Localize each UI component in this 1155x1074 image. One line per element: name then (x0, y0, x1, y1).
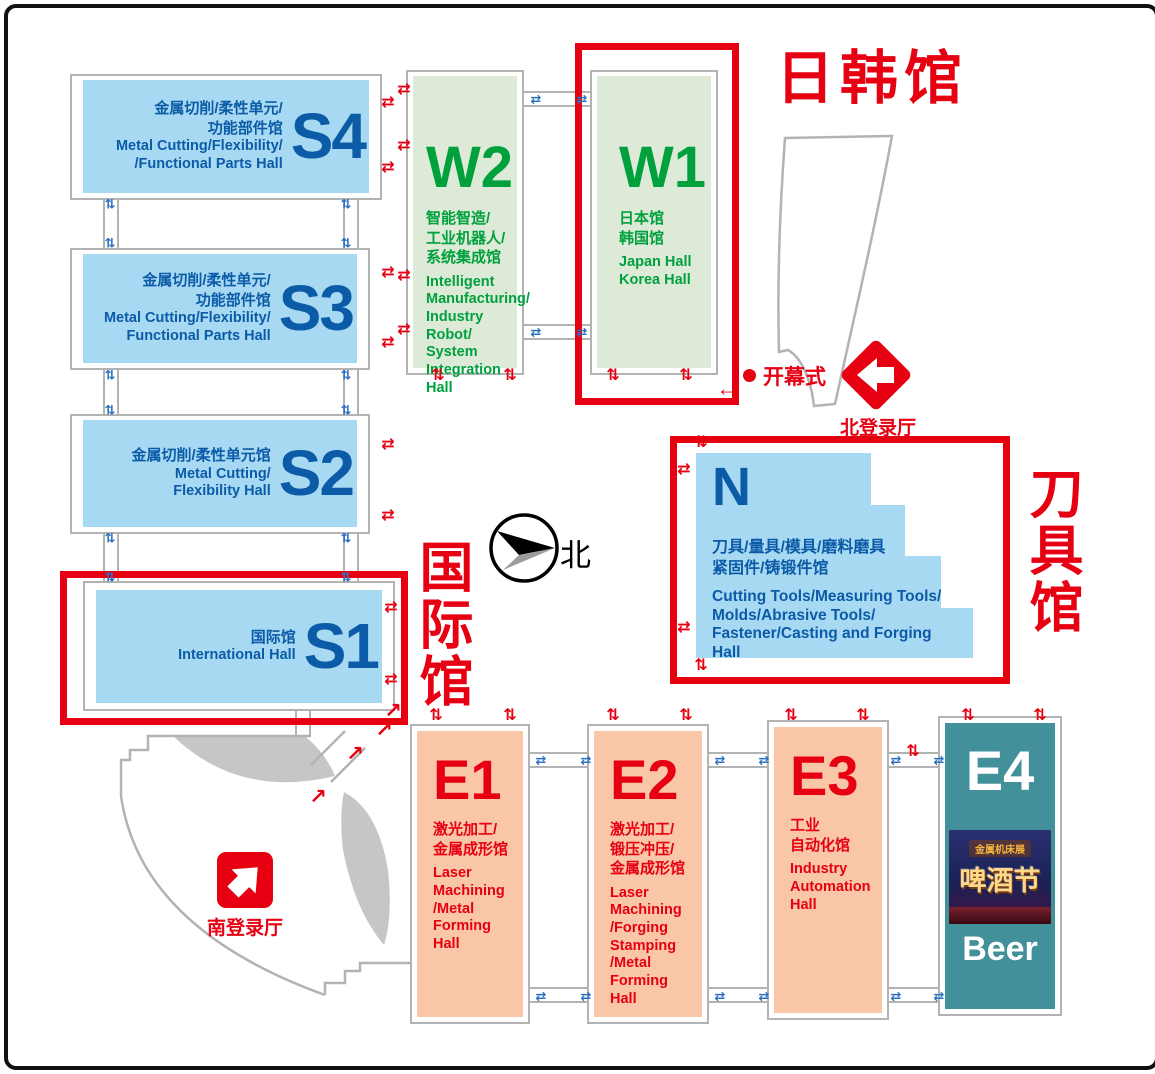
hall-s3-en-label: Metal Cutting/Flexibility/ Functional Pa… (104, 310, 271, 345)
exhibition-floor-map: 金属切削/柔性单元/ 功能部件馆Metal Cutting/Flexibilit… (4, 4, 1155, 1070)
transfer-horizontal-arrow-icon: ⇄ (677, 620, 690, 636)
hall-n: N 刀具/量具/模具/磨料磨具 紧固件/铸锻件馆 Cutting Tools/M… (712, 460, 962, 663)
hall-e1-zh-label: 激光加工/ 金属成形馆 (433, 820, 523, 859)
transfer-horizontal-arrow-icon: ⇄ (715, 990, 726, 1003)
hall-s4-en-label: Metal Cutting/Flexibility/ /Functional P… (116, 138, 283, 173)
south-entrance-label: 南登录厅 (192, 913, 298, 940)
transfer-horizontal-arrow-icon: ⇄ (384, 600, 397, 616)
transfer-horizontal-arrow-icon: ⇄ (536, 990, 547, 1003)
poster-crowd-strip (949, 907, 1051, 924)
hall-s1-zh-label: 国际馆 (178, 628, 296, 648)
route-arrow-icon: ↗ (346, 744, 364, 765)
transfer-horizontal-arrow-icon: ⇄ (397, 138, 410, 154)
hall-e2-en-label: Laser Machining /Forging Stamping /Metal… (610, 885, 702, 1009)
hall-e1-code: E1 (433, 753, 523, 806)
hall-e2: E2 激光加工/ 锻压冲压/ 金属成形馆 Laser Machining /Fo… (594, 731, 702, 1017)
transfer-vertical-arrow-icon: ⇅ (105, 404, 116, 417)
hall-s2-en-label: Metal Cutting/ Flexibility Hall (132, 466, 271, 501)
transfer-vertical-arrow-icon: ⇅ (429, 708, 442, 724)
transfer-horizontal-arrow-icon: ⇄ (715, 754, 726, 767)
hall-e3-code: E3 (790, 749, 882, 802)
hall-s2-zh-label: 金属切削/柔性单元馆 (132, 446, 271, 466)
transfer-vertical-arrow-icon: ⇅ (105, 198, 116, 211)
hall-s1-en-label: International Hall (178, 647, 296, 665)
beer-festival-poster: 金属机床展 啤酒节 (949, 830, 1051, 924)
transfer-horizontal-arrow-icon: ⇄ (577, 326, 588, 339)
northeast-arrow-icon (221, 855, 270, 904)
hall-e3-en-label: Industry Automation Hall (790, 861, 882, 914)
transfer-horizontal-arrow-icon: ⇄ (536, 754, 547, 767)
transfer-vertical-arrow-icon: ⇅ (694, 658, 707, 674)
route-arrow-icon: ↗ (309, 787, 327, 808)
transfer-horizontal-arrow-icon: ⇄ (381, 437, 394, 453)
opening-ceremony-label: 开幕式 (763, 361, 826, 391)
hall-s1-code: S1 (304, 616, 378, 677)
transfer-horizontal-arrow-icon: ⇄ (397, 268, 410, 284)
transfer-vertical-arrow-icon: ⇅ (105, 237, 116, 250)
hall-e3: E3 工业 自动化馆 Industry Automation Hall (774, 727, 882, 1013)
transfer-horizontal-arrow-icon: ⇄ (759, 990, 770, 1003)
transfer-vertical-arrow-icon: ⇅ (503, 708, 516, 724)
transfer-horizontal-arrow-icon: ⇄ (891, 754, 902, 767)
transfer-horizontal-arrow-icon: ⇄ (677, 462, 690, 478)
hall-e1-en-label: Laser Machining /Metal Forming Hall (433, 865, 523, 953)
plaza-upper-crescent (174, 737, 335, 782)
south-entrance-icon (217, 852, 273, 908)
opening-ceremony-dot (743, 369, 756, 382)
hall-e2-zh-label: 激光加工/ 锻压冲压/ 金属成形馆 (610, 820, 702, 879)
transfer-horizontal-arrow-icon: ⇄ (381, 160, 394, 176)
hall-e1: E1 激光加工/ 金属成形馆 Laser Machining /Metal Fo… (417, 731, 523, 1017)
transfer-vertical-arrow-icon: ⇅ (105, 571, 116, 584)
transfer-vertical-arrow-icon: ⇅ (105, 532, 116, 545)
transfer-vertical-arrow-icon: ⇅ (105, 369, 116, 382)
hall-w1-en-label: Japan Hall Korea Hall (619, 254, 711, 289)
route-arrow-icon: ↗ (384, 701, 402, 722)
hall-w2: W2 智能智造/ 工业机器人/ 系统集成馆 Intelligent Manufa… (413, 76, 517, 368)
hall-s4-zh-label: 金属切削/柔性单元/ 功能部件馆 (116, 99, 283, 138)
hall-s1: 国际馆International Hall S1 (96, 590, 382, 703)
transfer-horizontal-arrow-icon: ⇄ (891, 990, 902, 1003)
poster-title-label: 啤酒节 (960, 859, 1041, 898)
transfer-vertical-arrow-icon: ⇅ (341, 532, 352, 545)
hall-w2-code: W2 (426, 140, 517, 195)
transfer-vertical-arrow-icon: ⇅ (679, 708, 692, 724)
hall-s4: 金属切削/柔性单元/ 功能部件馆Metal Cutting/Flexibilit… (83, 80, 369, 193)
transfer-vertical-arrow-icon: ⇅ (341, 571, 352, 584)
compass-icon (486, 510, 564, 588)
hall-n-en-label: Cutting Tools/Measuring Tools/ Molds/Abr… (712, 588, 962, 664)
area-title-tools: 刀具馆 (1024, 465, 1078, 636)
transfer-vertical-arrow-icon: ⇅ (606, 368, 619, 384)
transfer-vertical-arrow-icon: ⇅ (341, 369, 352, 382)
transfer-vertical-arrow-icon: ⇅ (341, 237, 352, 250)
transfer-horizontal-arrow-icon: ⇄ (397, 82, 410, 98)
transfer-horizontal-arrow-icon: ⇄ (531, 326, 542, 339)
transfer-horizontal-arrow-icon: ⇄ (934, 990, 945, 1003)
transfer-vertical-arrow-icon: ⇅ (503, 368, 516, 384)
transfer-vertical-arrow-icon: ⇅ (679, 368, 692, 384)
transfer-vertical-arrow-icon: ⇅ (784, 708, 797, 724)
plaza-lower-crescent (341, 792, 390, 945)
transfer-horizontal-arrow-icon: ⇄ (759, 754, 770, 767)
transfer-vertical-arrow-icon: ⇅ (606, 708, 619, 724)
transfer-horizontal-arrow-icon: ⇄ (577, 93, 588, 106)
area-title-international: 国际馆 (414, 539, 468, 710)
transfer-vertical-arrow-icon: ⇅ (1033, 708, 1046, 724)
left-arrow-icon (857, 358, 894, 392)
transfer-horizontal-arrow-icon: ⇄ (397, 322, 410, 338)
transfer-horizontal-arrow-icon: ⇄ (381, 335, 394, 351)
transfer-horizontal-arrow-icon: ⇄ (934, 754, 945, 767)
transfer-vertical-arrow-icon: ⇅ (431, 368, 444, 384)
hall-s3: 金属切削/柔性单元/ 功能部件馆Metal Cutting/Flexibilit… (83, 254, 357, 363)
transfer-horizontal-arrow-icon: ⇄ (581, 754, 592, 767)
hall-s3-zh-label: 金属切削/柔性单元/ 功能部件馆 (104, 271, 271, 310)
route-arrow-icon: ↗ (375, 720, 393, 741)
transfer-horizontal-arrow-icon: ⇄ (581, 990, 592, 1003)
transfer-horizontal-arrow-icon: ⇄ (381, 508, 394, 524)
transfer-vertical-arrow-icon: ⇅ (341, 404, 352, 417)
compass-north-label: 北 (560, 530, 591, 575)
transfer-vertical-arrow-icon: ⇅ (694, 435, 707, 451)
transfer-horizontal-arrow-icon: ⇄ (531, 93, 542, 106)
hall-n-zh-label: 刀具/量具/模具/磨料磨具 紧固件/铸锻件馆 (712, 538, 962, 580)
hall-s2: 金属切削/柔性单元馆Metal Cutting/ Flexibility Hal… (83, 420, 357, 527)
transfer-horizontal-arrow-icon: ⇄ (384, 672, 397, 688)
hall-s3-code: S3 (279, 278, 353, 339)
hall-e2-code: E2 (610, 753, 702, 806)
hall-e4-beer-label: Beer (945, 930, 1055, 969)
plaza-outline (121, 731, 411, 995)
hall-e3-zh-label: 工业 自动化馆 (790, 816, 882, 855)
hall-w1-code: W1 (619, 140, 711, 195)
transfer-vertical-arrow-icon: ⇅ (341, 198, 352, 211)
transfer-horizontal-arrow-icon: ⇄ (381, 95, 394, 111)
hall-s2-code: S2 (279, 443, 353, 504)
hall-w2-zh-label: 智能智造/ 工业机器人/ 系统集成馆 (426, 209, 517, 268)
hall-n-code: N (712, 460, 962, 514)
north-entrance-label: 北登录厅 (826, 413, 930, 440)
hall-w1-zh-label: 日本馆 韩国馆 (619, 209, 711, 248)
transfer-vertical-arrow-icon: ⇅ (856, 708, 869, 724)
transfer-vertical-arrow-icon: ⇅ (906, 744, 919, 760)
poster-ribbon-label: 金属机床展 (969, 840, 1031, 857)
transfer-horizontal-arrow-icon: ⇄ (381, 265, 394, 281)
area-title-japan-korea: 日韩馆 (776, 50, 968, 108)
hall-e4-code: E4 (945, 738, 1055, 803)
north-entrance-icon (837, 336, 915, 414)
route-arrow-icon: ← (717, 379, 738, 400)
transfer-vertical-arrow-icon: ⇅ (961, 708, 974, 724)
hall-w1: W1 日本馆 韩国馆 Japan Hall Korea Hall (597, 76, 711, 368)
hall-s4-code: S4 (291, 106, 365, 167)
